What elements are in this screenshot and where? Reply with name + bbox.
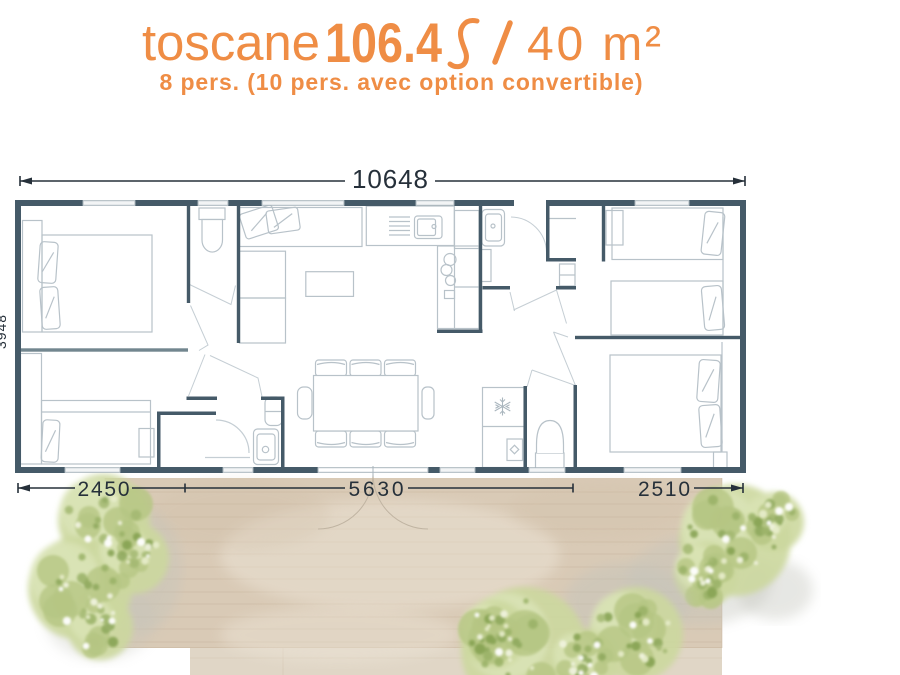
svg-text:2510: 2510 (638, 478, 690, 501)
svg-text:10648: 10648 (352, 164, 428, 194)
svg-text:3948: 3948 (0, 315, 9, 349)
svg-text:106.4: 106.4 (325, 11, 442, 74)
svg-text:8 pers. (10 pers. avec option: 8 pers. (10 pers. avec option convertibl… (160, 69, 643, 95)
svg-text:toscane: toscane (142, 14, 319, 71)
svg-text:40 m²: 40 m² (527, 18, 661, 71)
svg-text:2450: 2450 (78, 478, 130, 501)
